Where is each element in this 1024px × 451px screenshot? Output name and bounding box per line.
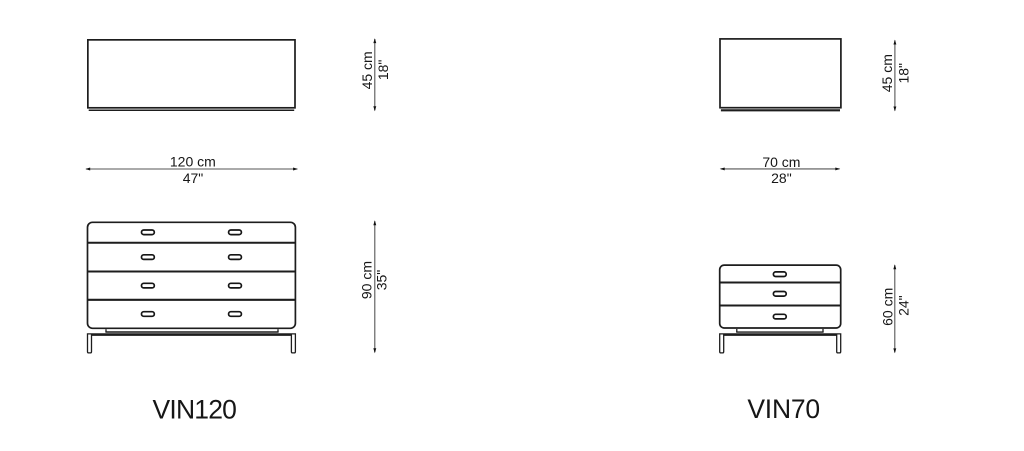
svg-text:45 cm: 45 cm — [879, 54, 895, 92]
svg-text:28": 28" — [771, 170, 792, 186]
svg-text:VIN120: VIN120 — [153, 394, 237, 424]
svg-text:47": 47" — [183, 170, 204, 186]
svg-text:18": 18" — [375, 60, 391, 81]
svg-text:70 cm: 70 cm — [762, 154, 800, 170]
svg-text:60 cm: 60 cm — [879, 288, 895, 326]
svg-text:18": 18" — [896, 63, 912, 84]
svg-text:120 cm: 120 cm — [170, 154, 216, 170]
svg-text:VIN70: VIN70 — [747, 394, 820, 424]
svg-text:24": 24" — [895, 295, 911, 316]
svg-text:90 cm: 90 cm — [359, 261, 375, 299]
svg-text:35": 35" — [374, 270, 390, 291]
svg-text:45 cm: 45 cm — [359, 51, 375, 89]
